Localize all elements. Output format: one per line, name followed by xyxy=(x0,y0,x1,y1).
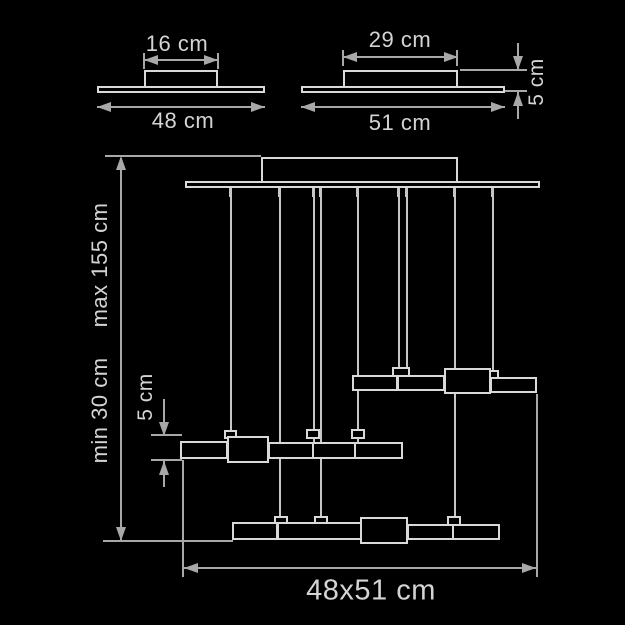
canopy-base-plate xyxy=(97,86,265,93)
dimension-line-51cm xyxy=(301,106,505,108)
height-min-label: min 30 cm xyxy=(87,357,113,463)
canopy-base-plate xyxy=(301,86,505,93)
arrowhead-left-icon xyxy=(97,102,111,112)
suspension-wire xyxy=(398,188,400,377)
suspension-wire xyxy=(313,188,315,444)
dimension-label-5cm-bar: 5 cm xyxy=(134,373,158,421)
light-bar-segment xyxy=(312,442,356,459)
extension-line xyxy=(105,155,261,157)
ceiling-mount-box xyxy=(261,157,458,183)
suspension-wire xyxy=(230,188,232,438)
wire-hook xyxy=(278,188,281,197)
dimension-line-footprint xyxy=(184,567,536,569)
wire-hook xyxy=(397,188,400,197)
arrowhead-up-icon xyxy=(159,461,169,475)
arrowhead-right-icon xyxy=(251,102,265,112)
wire-connector xyxy=(306,429,320,439)
light-bar-segment xyxy=(232,522,278,540)
ceiling-plate xyxy=(185,181,540,188)
arrowhead-down-icon xyxy=(116,527,126,541)
light-bar-segment xyxy=(180,441,228,459)
wire-hook xyxy=(405,188,408,197)
arrowhead-up-icon xyxy=(116,156,126,170)
dimension-label-16cm: 16 cm xyxy=(146,31,208,57)
arrowhead-left-icon xyxy=(301,102,315,112)
light-bar-segment xyxy=(268,442,314,459)
light-bar-segment xyxy=(354,442,403,459)
extension-line xyxy=(182,460,184,577)
suspension-wire xyxy=(406,188,408,375)
dimension-label-height: min 30 cm max 155 cm xyxy=(87,203,113,464)
arrowhead-right-icon xyxy=(491,102,505,112)
arrowhead-left-icon xyxy=(144,55,158,65)
arrowhead-down-icon xyxy=(159,422,169,436)
dimension-line-29cm xyxy=(343,56,458,58)
wire-connector xyxy=(351,429,365,439)
wire-hook xyxy=(319,188,322,197)
light-bar-segment xyxy=(490,377,537,393)
wire-hook xyxy=(491,188,494,197)
suspension-wire xyxy=(320,188,322,524)
light-bar-segment xyxy=(352,375,398,391)
arrowhead-left-icon xyxy=(343,52,357,62)
suspension-wire xyxy=(279,188,281,524)
arrowhead-right-icon xyxy=(444,52,458,62)
light-bar-segment xyxy=(277,522,362,540)
wire-hook xyxy=(312,188,315,197)
wire-hook xyxy=(229,188,232,197)
light-bar-segment xyxy=(397,375,445,391)
arrowhead-left-icon xyxy=(184,563,198,573)
driver-box xyxy=(444,368,491,394)
arrowhead-right-icon xyxy=(204,55,218,65)
arrowhead-right-icon xyxy=(522,563,536,573)
light-bar-segment xyxy=(407,524,454,540)
height-max-label: max 155 cm xyxy=(87,203,113,328)
driver-box xyxy=(227,436,269,463)
arrowhead-down-icon xyxy=(513,56,523,70)
dimension-label-51cm: 51 cm xyxy=(369,110,431,136)
wire-hook xyxy=(453,188,456,197)
dimension-label-29cm: 29 cm xyxy=(369,27,431,53)
dimension-label-48cm: 48 cm xyxy=(152,108,214,134)
arrowhead-up-icon xyxy=(513,92,523,106)
extension-line xyxy=(536,394,538,577)
suspension-wire xyxy=(454,188,456,524)
wire-hook xyxy=(356,188,359,197)
dimension-label-5cm-canopy: 5 cm xyxy=(525,58,549,106)
dimension-line-height xyxy=(120,158,122,541)
suspension-wire xyxy=(357,188,359,444)
dimension-label-footprint: 48x51 cm xyxy=(306,575,436,608)
diagram-canvas: 16 cm 48 cm 29 cm 51 cm 5 cm xyxy=(0,0,625,625)
driver-box xyxy=(360,517,408,544)
suspension-wire xyxy=(492,188,494,379)
light-bar-segment xyxy=(452,524,500,540)
